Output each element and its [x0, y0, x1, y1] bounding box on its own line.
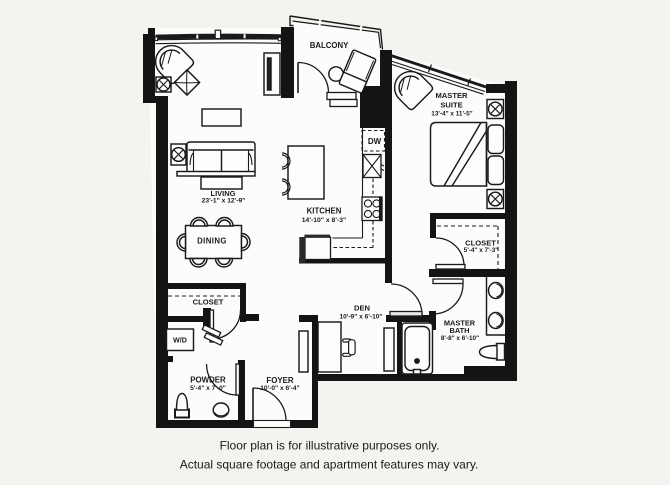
svg-text:CLOSET: CLOSET [193, 298, 224, 307]
svg-text:W/D: W/D [173, 336, 187, 345]
svg-text:5'-4" x 7'-3": 5'-4" x 7'-3" [464, 247, 499, 254]
svg-text:5'-4" x 7'-0": 5'-4" x 7'-0" [190, 385, 226, 392]
svg-text:KITCHEN: KITCHEN [307, 207, 342, 216]
svg-text:23'-1" x 12'-9": 23'-1" x 12'-9" [202, 198, 246, 205]
svg-text:BATH: BATH [450, 326, 470, 335]
svg-text:14'-10" x 8'-3": 14'-10" x 8'-3" [302, 217, 346, 224]
svg-text:8'-8" x 6'-10": 8'-8" x 6'-10" [441, 335, 479, 342]
svg-text:10'-0" x 6'-4": 10'-0" x 6'-4" [260, 385, 299, 392]
svg-text:SUITE: SUITE [440, 101, 462, 110]
svg-text:Floor plan is for illustrative: Floor plan is for illustrative purposes … [220, 439, 440, 453]
svg-text:13'-4" x 11'-5": 13'-4" x 11'-5" [431, 111, 472, 118]
svg-text:DINING: DINING [197, 237, 227, 246]
svg-text:Actual square footage and apar: Actual square footage and apartment feat… [180, 458, 479, 472]
svg-text:DW: DW [368, 137, 382, 146]
svg-text:POWDER: POWDER [190, 376, 226, 385]
svg-text:MASTER: MASTER [435, 91, 468, 100]
svg-text:10'-9" x 6'-10": 10'-9" x 6'-10" [339, 314, 382, 321]
svg-text:FOYER: FOYER [266, 376, 293, 385]
svg-text:BALCONY: BALCONY [310, 41, 349, 50]
svg-text:DEN: DEN [354, 304, 370, 313]
